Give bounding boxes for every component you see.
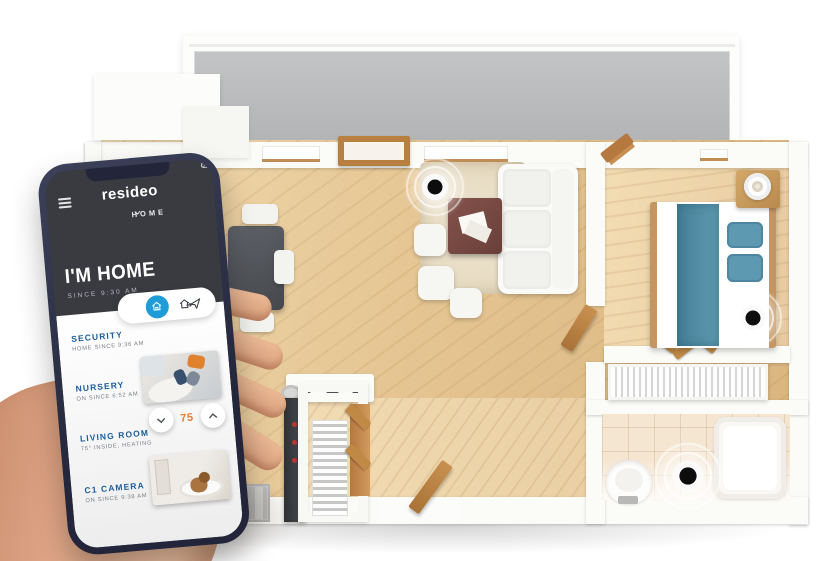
chevron-up-icon [207,411,219,420]
dog-camera-thumbnail[interactable] [149,450,231,506]
scene: 88° resideo HOME I'M HOME SINCE 9:30 AM [0,0,828,561]
window [700,149,728,161]
dining-chair [274,250,294,284]
app-screen: 88° resideo HOME I'M HOME SINCE 9:30 AM [44,158,244,549]
window-bench [338,136,410,166]
kitchen-cabinet [183,106,249,158]
faucet [618,496,638,504]
mode-home-button[interactable] [144,294,169,319]
home-icon [150,300,163,313]
phone-notch [86,162,171,182]
nursery-chair [187,354,206,369]
temp-up-button[interactable] [199,402,226,429]
wall-bedroom-divider-upper [586,142,605,306]
closet-dresser [608,364,768,400]
airplane-icon [188,296,202,310]
window [262,146,320,162]
roof-panel [183,36,739,148]
roof-molding [189,44,735,47]
camera-view-door [154,459,171,495]
temp-down-button[interactable] [147,406,174,433]
pillow [727,222,763,248]
nursery-camera-thumbnail[interactable] [140,350,222,404]
sofa [498,164,578,294]
lamp [744,173,771,200]
nursery-window [140,355,165,377]
staircase [312,420,348,516]
ottoman [414,224,446,256]
smart-sensor-living-room [403,155,467,219]
dining-chair [242,204,278,224]
chevron-down-icon [155,416,167,425]
bed-runner [677,204,719,346]
pillow [727,254,763,282]
ottoman [450,288,482,318]
smart-sensor-bathroom [651,439,725,513]
ottoman [418,266,454,300]
roof-gray-surface [194,51,730,152]
menu-icon[interactable] [58,197,72,208]
temp-setpoint: 75 [180,411,194,424]
wall-bathroom-top [586,400,808,415]
presence-status-title: I'M HOME [64,258,156,289]
smart-sensor-bedroom [721,286,785,350]
dining-chair [240,312,274,332]
chevron-down-icon [133,209,141,216]
phone: 88° resideo HOME I'M HOME SINCE 9:30 AM [36,151,251,557]
wall-right [789,142,808,525]
